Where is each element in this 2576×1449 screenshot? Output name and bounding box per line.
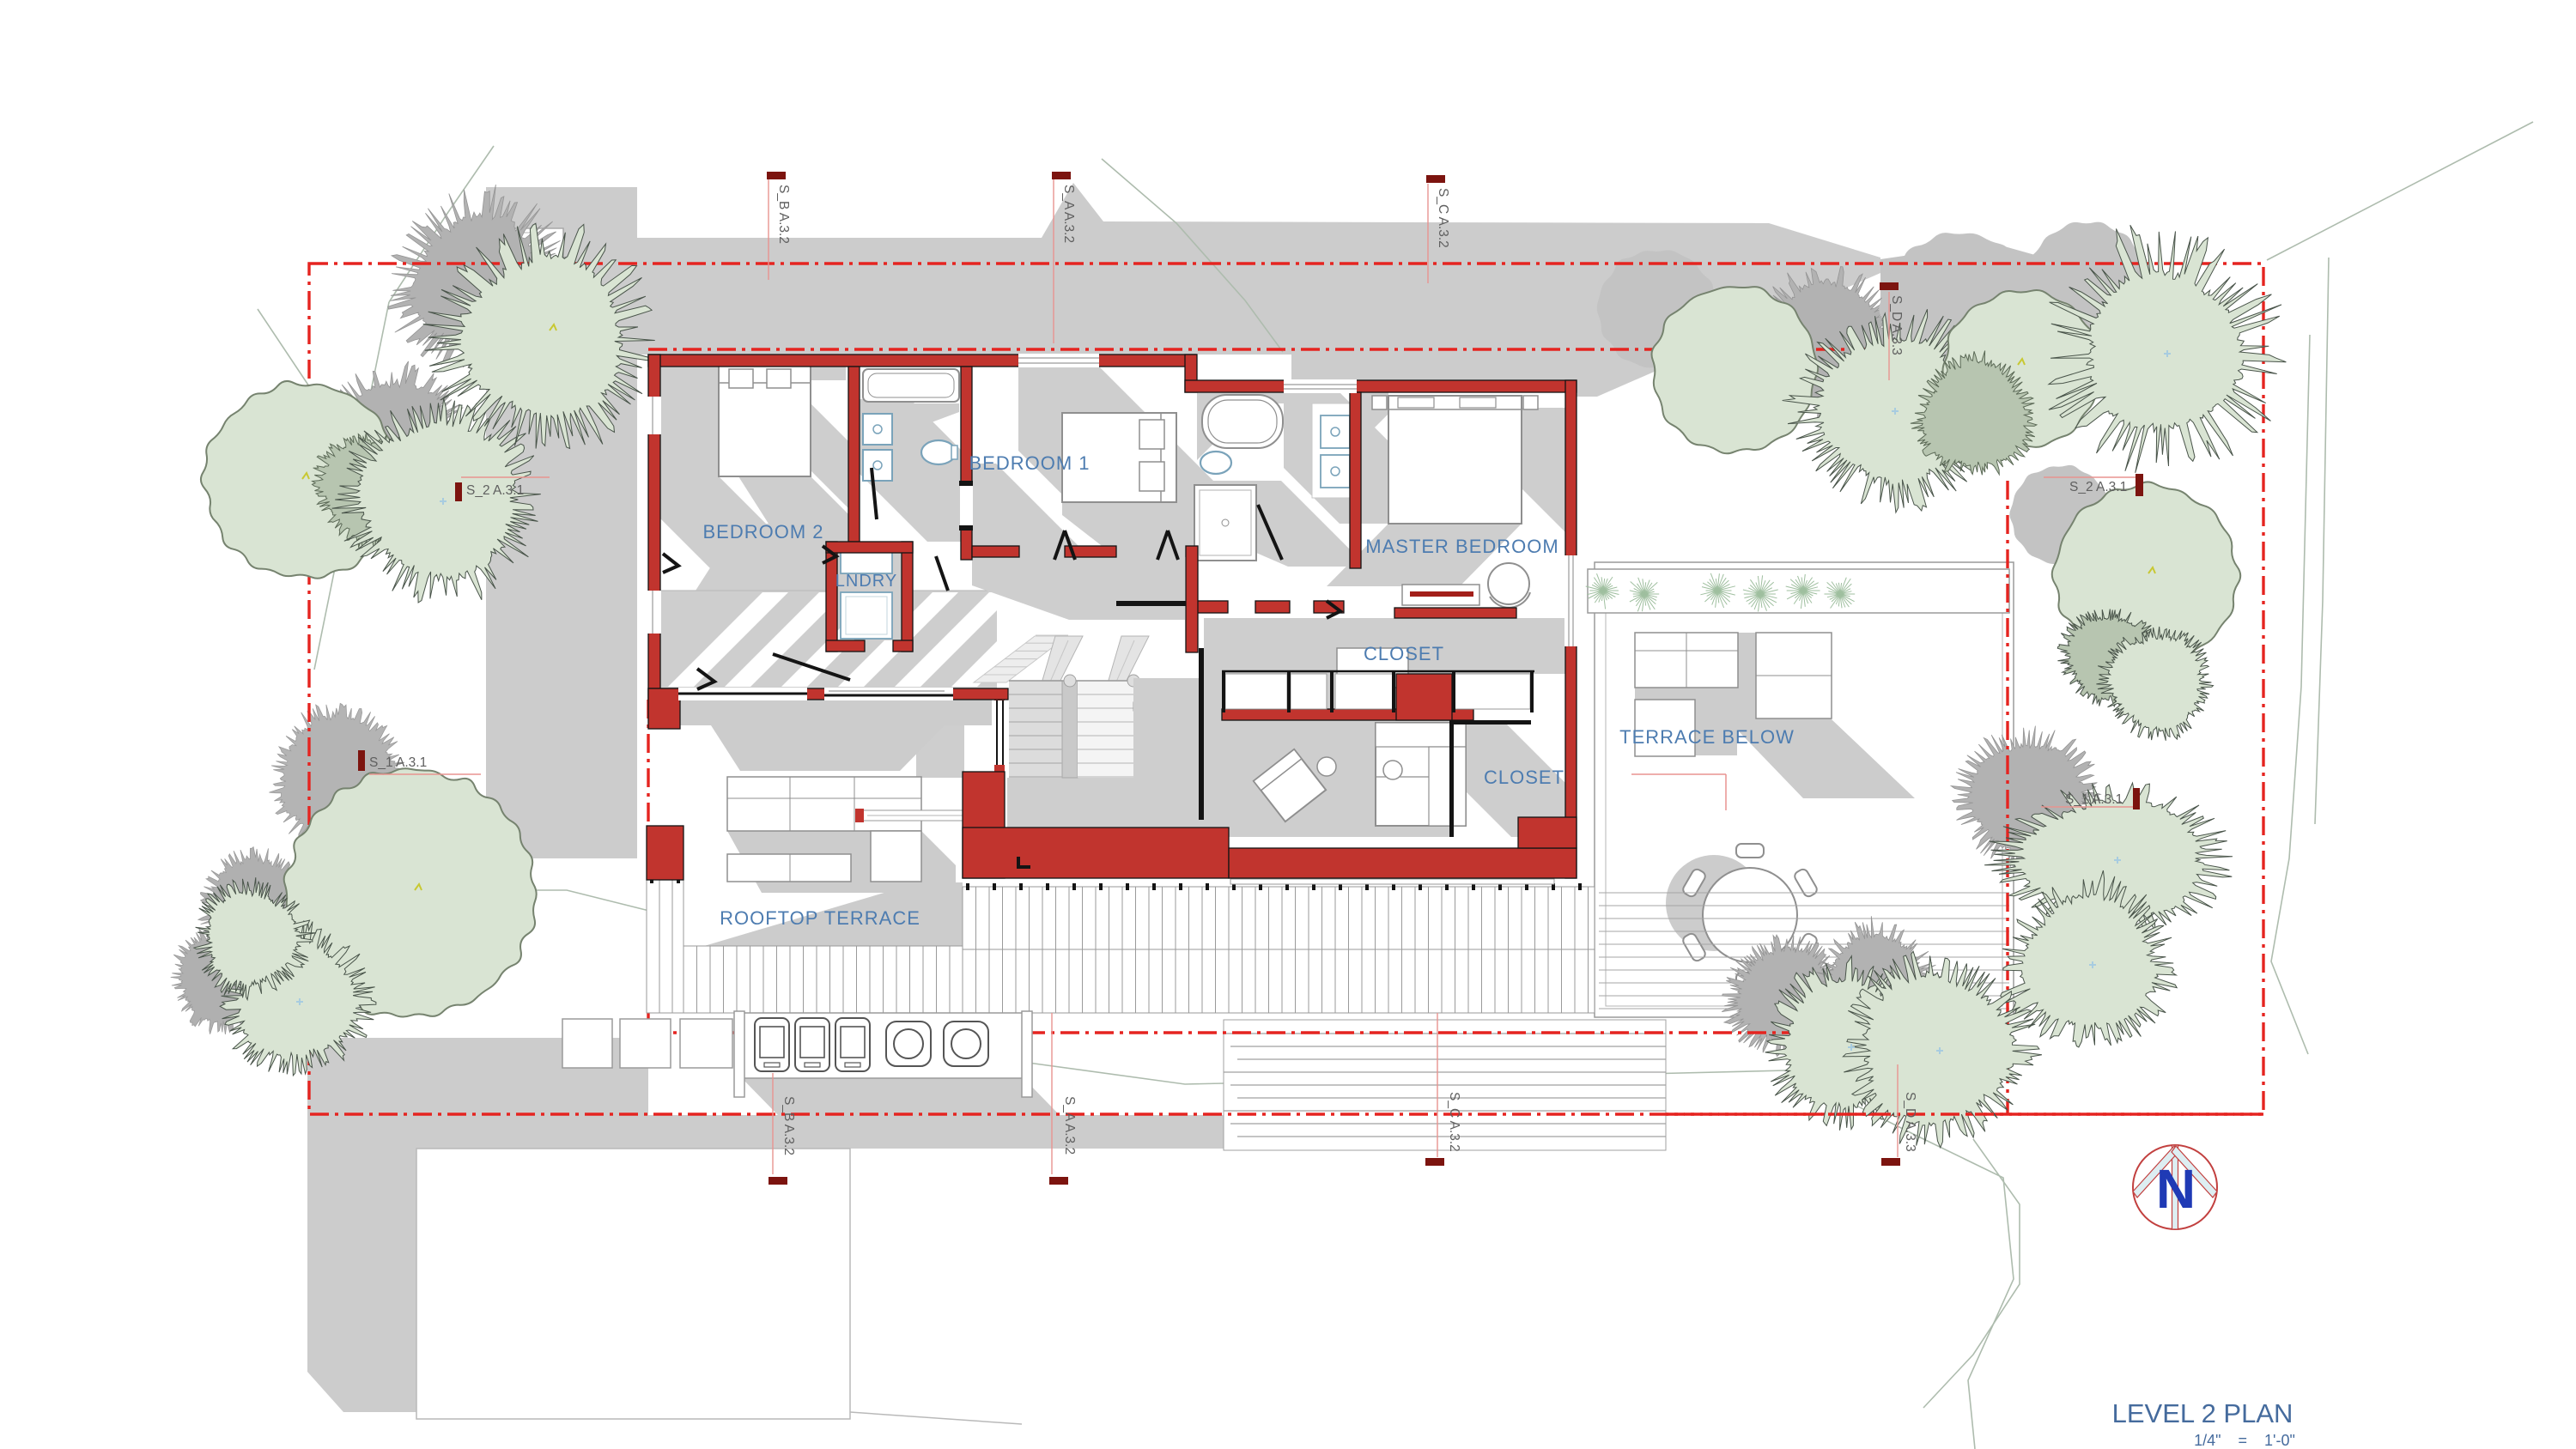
svg-text:S_C A.3.2: S_C A.3.2 [1447,1092,1461,1152]
svg-text:N: N [2156,1158,2196,1220]
svg-text:S_A A.3.2: S_A A.3.2 [1062,1096,1077,1155]
svg-text:S_B A.3.2: S_B A.3.2 [776,185,791,244]
svg-text:BEDROOM 2: BEDROOM 2 [702,521,823,543]
svg-text:S_2 A.3.1: S_2 A.3.1 [2069,480,2127,494]
svg-text:CLOSET: CLOSET [1364,643,1444,664]
svg-text:CLOSET: CLOSET [1484,767,1564,788]
svg-text:ROOFTOP TERRACE: ROOFTOP TERRACE [720,907,920,929]
svg-text:S_C A.3.2: S_C A.3.2 [1436,188,1450,248]
svg-text:S_D A.3.3: S_D A.3.3 [1889,295,1904,355]
svg-text:LNDRY: LNDRY [835,572,897,591]
svg-text:S_2 A.3.1: S_2 A.3.1 [466,483,524,498]
svg-text:1/4" = 1'-0": 1/4" = 1'-0" [2194,1432,2295,1449]
svg-text:LEVEL 2 PLAN: LEVEL 2 PLAN [2112,1398,2293,1428]
svg-text:S_B A.3.2: S_B A.3.2 [781,1096,796,1155]
svg-text:S_D A.3.3: S_D A.3.3 [1903,1092,1917,1152]
svg-text:BEDROOM 1: BEDROOM 1 [969,452,1090,474]
svg-text:MASTER BEDROOM: MASTER BEDROOM [1365,536,1558,557]
svg-text:S_1 A.3.1: S_1 A.3.1 [369,755,427,770]
svg-text:S_1 A.3.1: S_1 A.3.1 [2065,792,2123,807]
svg-text:TERRACE BELOW: TERRACE BELOW [1619,726,1795,748]
svg-text:S_A A.3.2: S_A A.3.2 [1061,185,1076,243]
